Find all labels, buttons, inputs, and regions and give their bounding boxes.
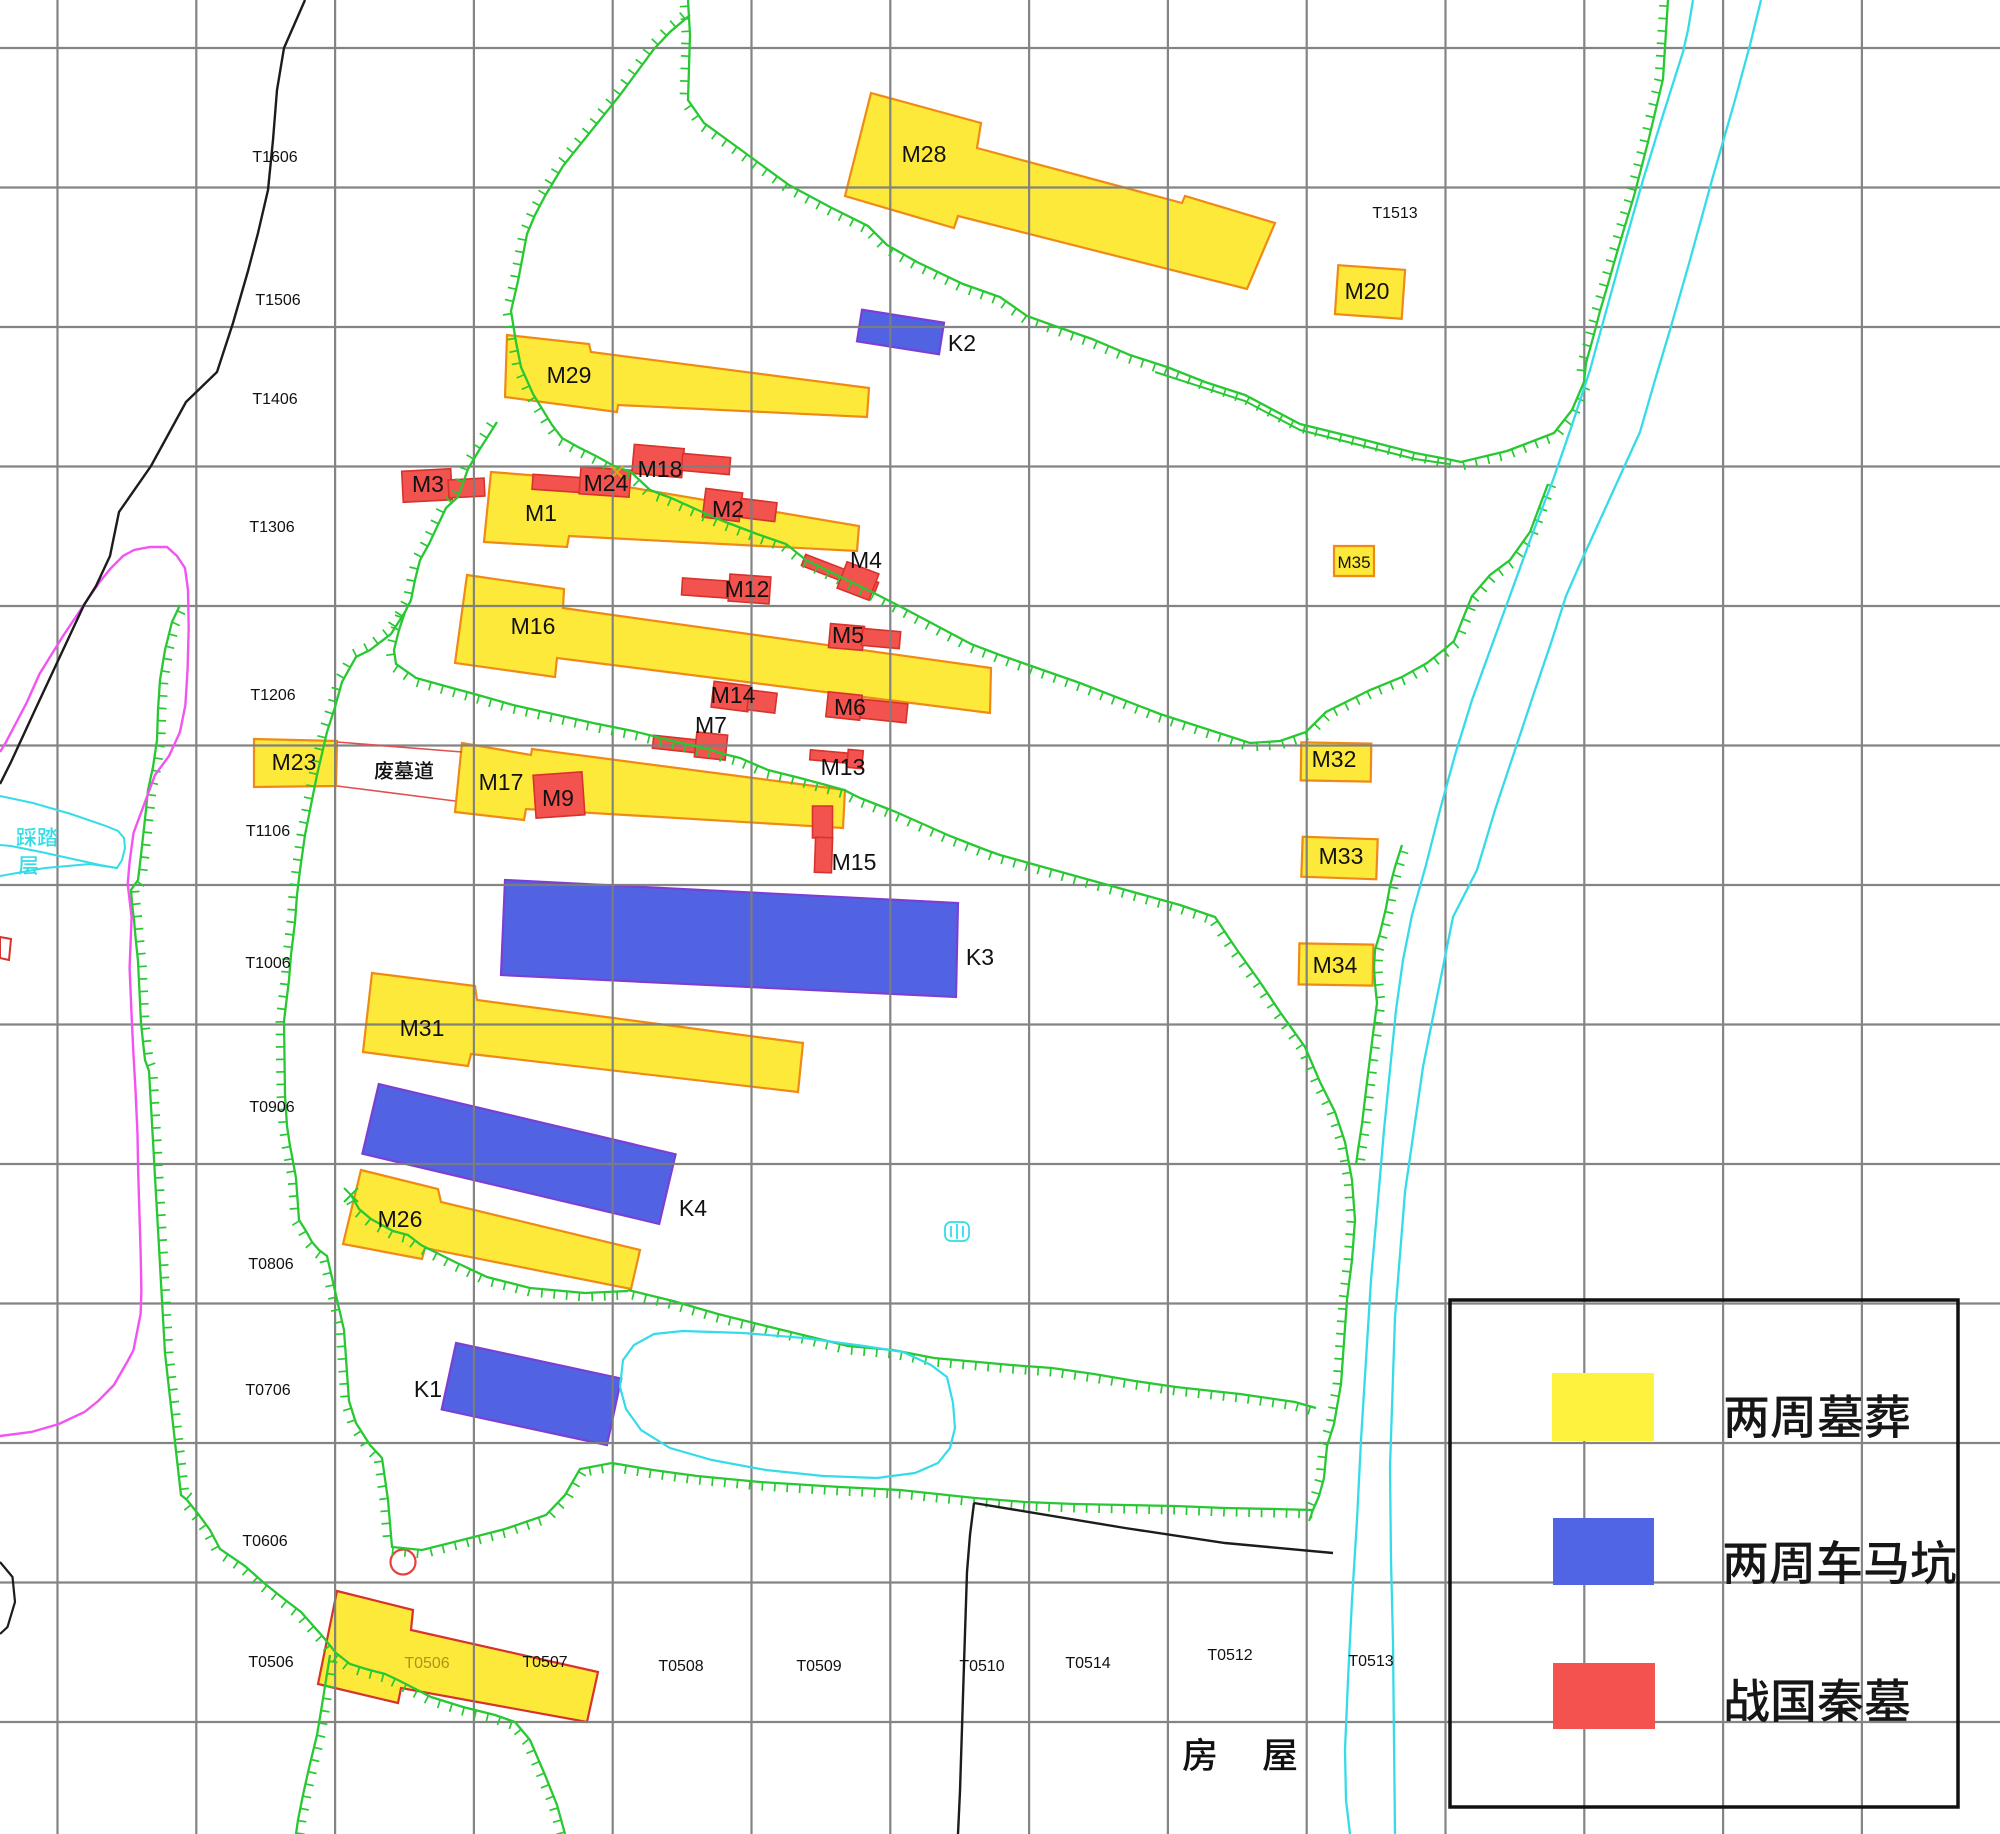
- svg-text:M7: M7: [695, 712, 727, 738]
- svg-text:T0806: T0806: [248, 1256, 293, 1273]
- svg-text:T1606: T1606: [252, 149, 297, 166]
- svg-text:M32: M32: [1312, 746, 1357, 772]
- svg-text:M4: M4: [850, 547, 882, 573]
- svg-text:T0514: T0514: [1065, 1655, 1110, 1672]
- svg-text:M16: M16: [511, 613, 556, 639]
- svg-text:T0510: T0510: [959, 1658, 1004, 1675]
- svg-text:K4: K4: [679, 1195, 707, 1221]
- svg-text:T0513: T0513: [1348, 1653, 1393, 1670]
- svg-text:M1: M1: [525, 500, 557, 526]
- svg-text:T1406: T1406: [252, 391, 297, 408]
- svg-text:M28: M28: [902, 141, 947, 167]
- svg-text:M17: M17: [479, 769, 524, 795]
- svg-text:K3: K3: [966, 944, 994, 970]
- svg-text:M31: M31: [400, 1015, 445, 1041]
- svg-text:T0606: T0606: [242, 1533, 287, 1550]
- svg-text:T1306: T1306: [249, 519, 294, 536]
- svg-text:M35: M35: [1337, 553, 1370, 572]
- svg-text:T1006: T1006: [245, 955, 290, 972]
- svg-text:T0706: T0706: [245, 1382, 290, 1399]
- svg-text:M2: M2: [712, 496, 744, 522]
- svg-text:M6: M6: [834, 694, 866, 720]
- svg-text:T1206: T1206: [250, 687, 295, 704]
- svg-text:M23: M23: [272, 749, 317, 775]
- svg-text:T0906: T0906: [249, 1099, 294, 1116]
- svg-text:M15: M15: [832, 849, 877, 875]
- svg-text:T0508: T0508: [658, 1658, 703, 1675]
- svg-text:M34: M34: [1313, 952, 1358, 978]
- svg-text:T0506: T0506: [404, 1655, 449, 1672]
- svg-text:M29: M29: [547, 362, 592, 388]
- svg-text:M20: M20: [1345, 278, 1390, 304]
- svg-text:T1513: T1513: [1372, 205, 1417, 222]
- svg-text:M9: M9: [542, 785, 574, 811]
- svg-text:T0509: T0509: [796, 1658, 841, 1675]
- svg-text:T0512: T0512: [1207, 1647, 1252, 1664]
- svg-text:M14: M14: [711, 682, 756, 708]
- svg-text:T0507: T0507: [522, 1654, 567, 1671]
- svg-text:M3: M3: [412, 471, 444, 497]
- svg-text:K1: K1: [414, 1376, 442, 1402]
- svg-text:T1106: T1106: [246, 823, 290, 840]
- svg-text:M24: M24: [584, 470, 629, 496]
- svg-text:M26: M26: [378, 1206, 423, 1232]
- svg-text:K2: K2: [948, 330, 976, 356]
- svg-text:M13: M13: [821, 754, 866, 780]
- svg-text:M12: M12: [725, 576, 770, 602]
- svg-text:M5: M5: [832, 622, 864, 648]
- svg-text:T0506: T0506: [248, 1654, 293, 1671]
- svg-text:M33: M33: [1319, 843, 1364, 869]
- svg-text:T1506: T1506: [255, 292, 300, 309]
- svg-text:M18: M18: [638, 456, 683, 482]
